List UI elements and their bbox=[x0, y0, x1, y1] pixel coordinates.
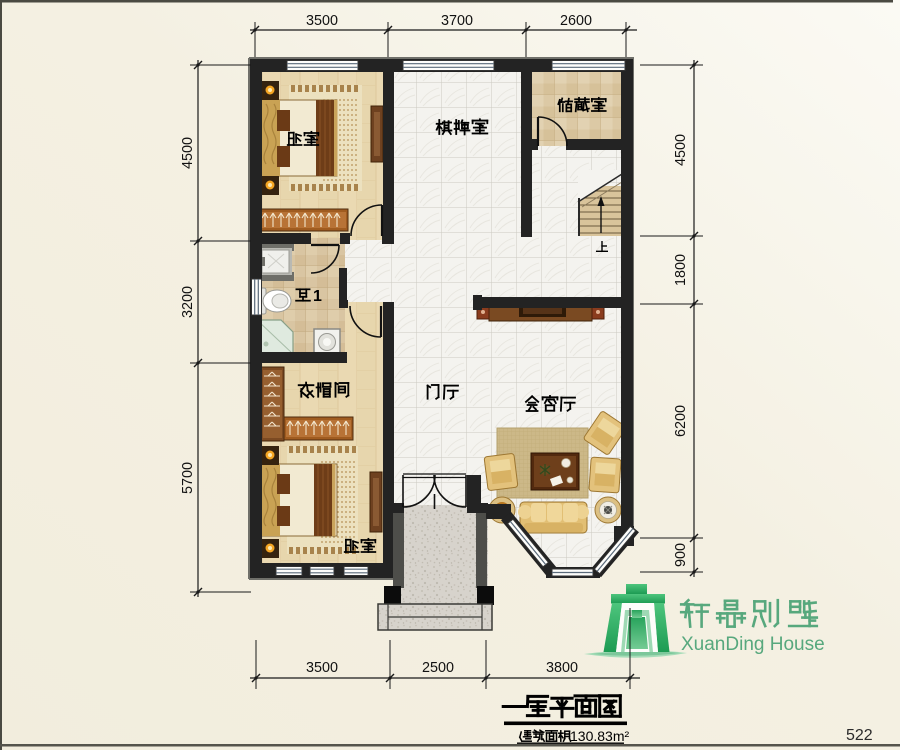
svg-text:XuanDing House: XuanDing House bbox=[681, 634, 825, 655]
svg-text:2600: 2600 bbox=[560, 13, 592, 29]
svg-text:1800: 1800 bbox=[673, 254, 689, 286]
svg-text:3500: 3500 bbox=[306, 13, 338, 29]
svg-text:2500: 2500 bbox=[422, 660, 454, 676]
svg-text:3200: 3200 bbox=[180, 286, 196, 318]
svg-text:3500: 3500 bbox=[306, 660, 338, 676]
svg-text:5700: 5700 bbox=[180, 462, 196, 494]
svg-text:522: 522 bbox=[846, 727, 873, 744]
svg-text:130.83m²: 130.83m² bbox=[570, 728, 629, 744]
svg-text:6200: 6200 bbox=[673, 405, 689, 437]
svg-text:4500: 4500 bbox=[673, 134, 689, 166]
svg-text:1: 1 bbox=[313, 288, 322, 305]
svg-text:4500: 4500 bbox=[180, 137, 196, 169]
svg-text:900: 900 bbox=[673, 543, 689, 567]
svg-text:3700: 3700 bbox=[441, 13, 473, 29]
svg-text:3800: 3800 bbox=[546, 660, 578, 676]
